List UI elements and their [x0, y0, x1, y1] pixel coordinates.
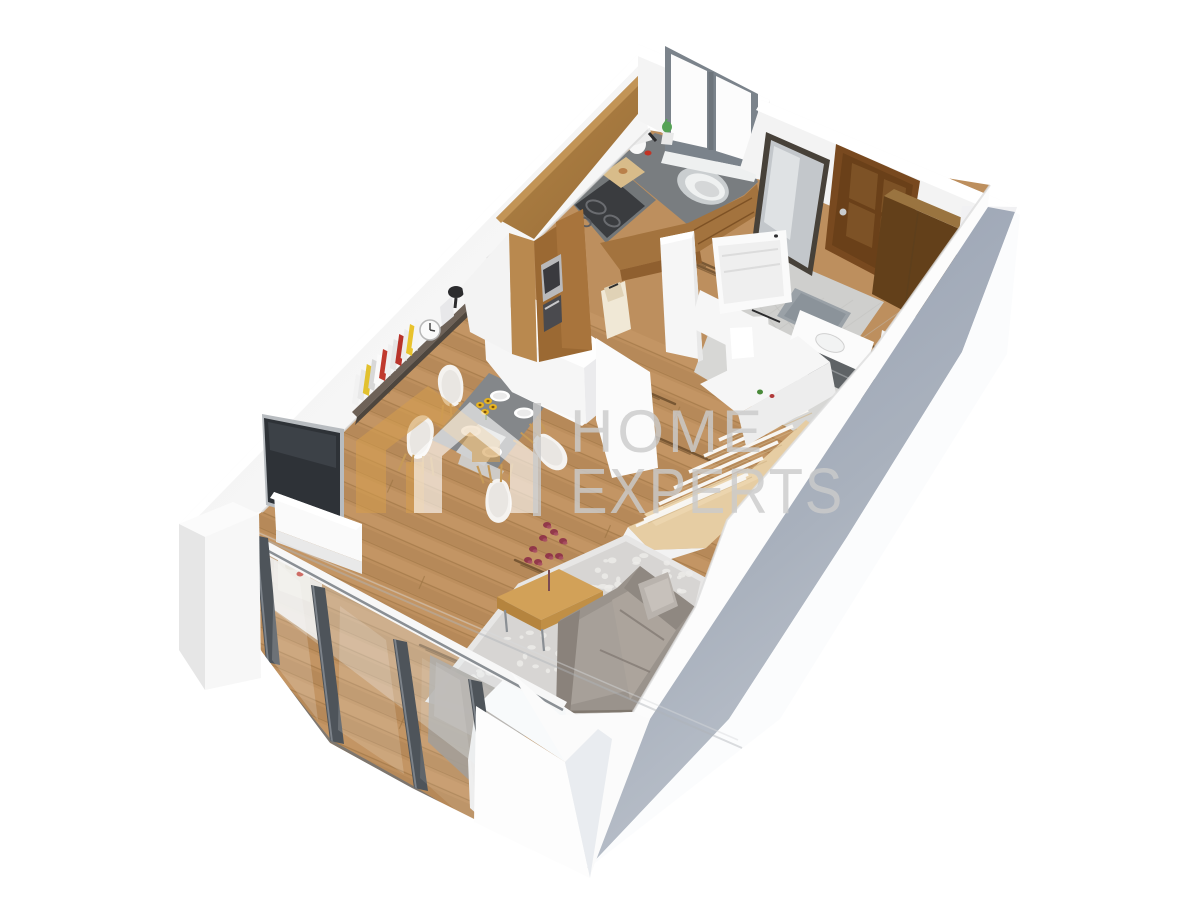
svg-text:EXPERTS: EXPERTS — [570, 455, 844, 527]
